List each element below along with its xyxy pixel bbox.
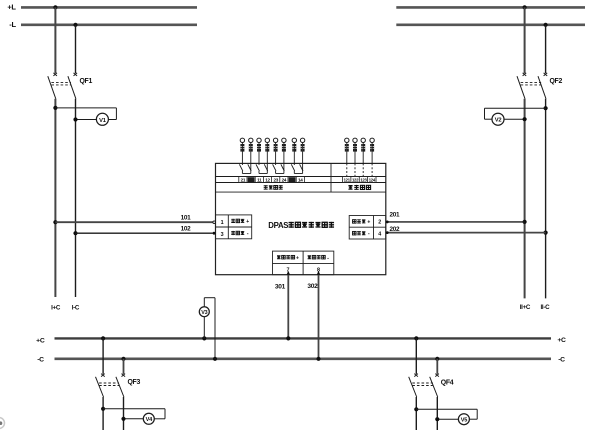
svg-text:+C: +C — [557, 337, 566, 344]
svg-text:24: 24 — [282, 178, 287, 183]
svg-text:23: 23 — [273, 178, 278, 183]
svg-text:14: 14 — [298, 178, 303, 183]
svg-text:12: 12 — [265, 178, 270, 183]
svg-text:-C: -C — [558, 357, 565, 364]
svg-text:21: 21 — [241, 178, 246, 183]
svg-text:QF2: QF2 — [550, 78, 563, 85]
svg-text:II-C: II-C — [541, 304, 551, 311]
svg-text:V2: V2 — [495, 118, 502, 124]
svg-text:123: 123 — [360, 177, 367, 182]
svg-text:-L: -L — [9, 20, 16, 29]
svg-text:122: 122 — [352, 177, 359, 182]
svg-text:101: 101 — [181, 214, 192, 221]
svg-text:302: 302 — [307, 283, 318, 290]
svg-text:V3: V3 — [201, 310, 207, 316]
svg-text:+C: +C — [36, 337, 45, 344]
svg-text:3: 3 — [221, 232, 224, 238]
svg-text:I+C: I+C — [51, 305, 61, 312]
svg-text:QF3: QF3 — [128, 379, 141, 386]
svg-text:121: 121 — [344, 177, 351, 182]
svg-text:V1: V1 — [99, 118, 107, 124]
svg-text:+: + — [246, 219, 249, 225]
svg-text:201: 201 — [390, 212, 401, 219]
svg-text:4: 4 — [378, 232, 381, 238]
svg-text:1: 1 — [221, 220, 224, 226]
svg-text:-C: -C — [37, 356, 44, 363]
svg-text:124: 124 — [369, 177, 376, 182]
svg-text:11: 11 — [257, 178, 262, 183]
svg-text:+: + — [296, 255, 299, 261]
svg-text:+: + — [367, 220, 370, 226]
svg-text:I-C: I-C — [72, 305, 80, 312]
svg-text:102: 102 — [181, 225, 192, 232]
svg-text:301: 301 — [275, 284, 286, 291]
svg-text:V5: V5 — [461, 418, 467, 424]
svg-text:QF1: QF1 — [80, 78, 93, 85]
svg-text:202: 202 — [390, 226, 401, 233]
svg-text:+L: +L — [7, 3, 16, 12]
svg-text:2: 2 — [378, 220, 381, 226]
svg-text:QF4: QF4 — [441, 380, 454, 387]
svg-text:DPAS: DPAS — [268, 221, 288, 230]
svg-text:II+C: II+C — [520, 304, 531, 311]
